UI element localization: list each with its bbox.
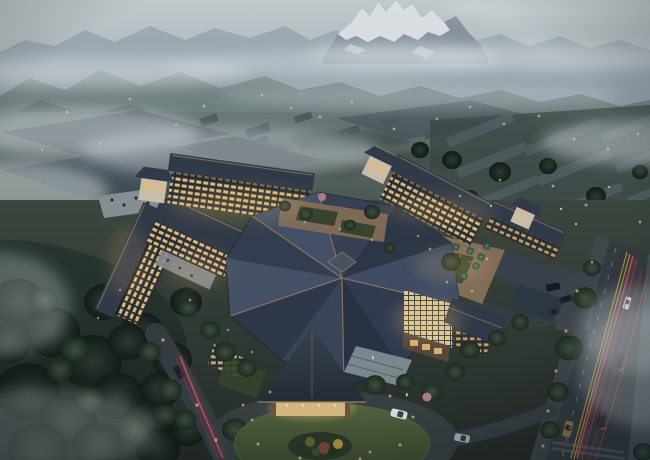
resort-rendering: Aerial dusk view of a mountain resort ho… bbox=[0, 0, 650, 460]
vignette bbox=[0, 0, 650, 460]
